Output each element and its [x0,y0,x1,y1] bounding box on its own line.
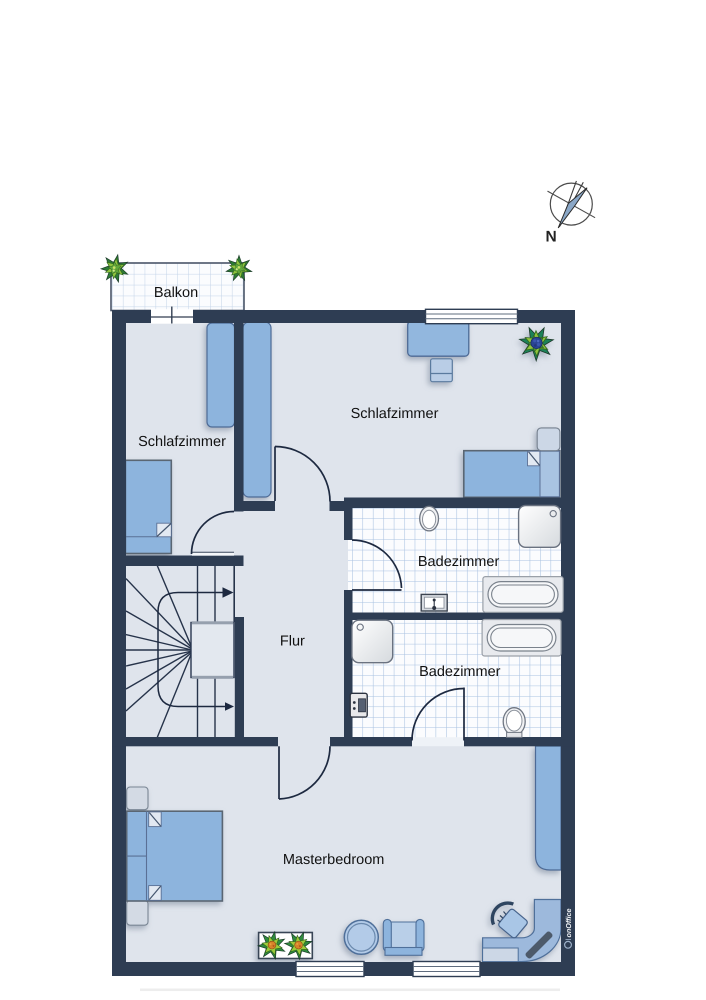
svg-text:Flur: Flur [280,633,305,649]
svg-text:Badezimmer: Badezimmer [418,554,500,570]
svg-text:Masterbedroom: Masterbedroom [283,852,385,868]
svg-text:Badezimmer: Badezimmer [419,664,501,680]
svg-text:Schlafzimmer: Schlafzimmer [138,434,226,450]
svg-text:Balkon: Balkon [154,285,198,301]
svg-text:onOffice: onOffice [564,908,573,937]
svg-text:N: N [546,229,557,246]
svg-text:Schlafzimmer: Schlafzimmer [351,406,439,422]
